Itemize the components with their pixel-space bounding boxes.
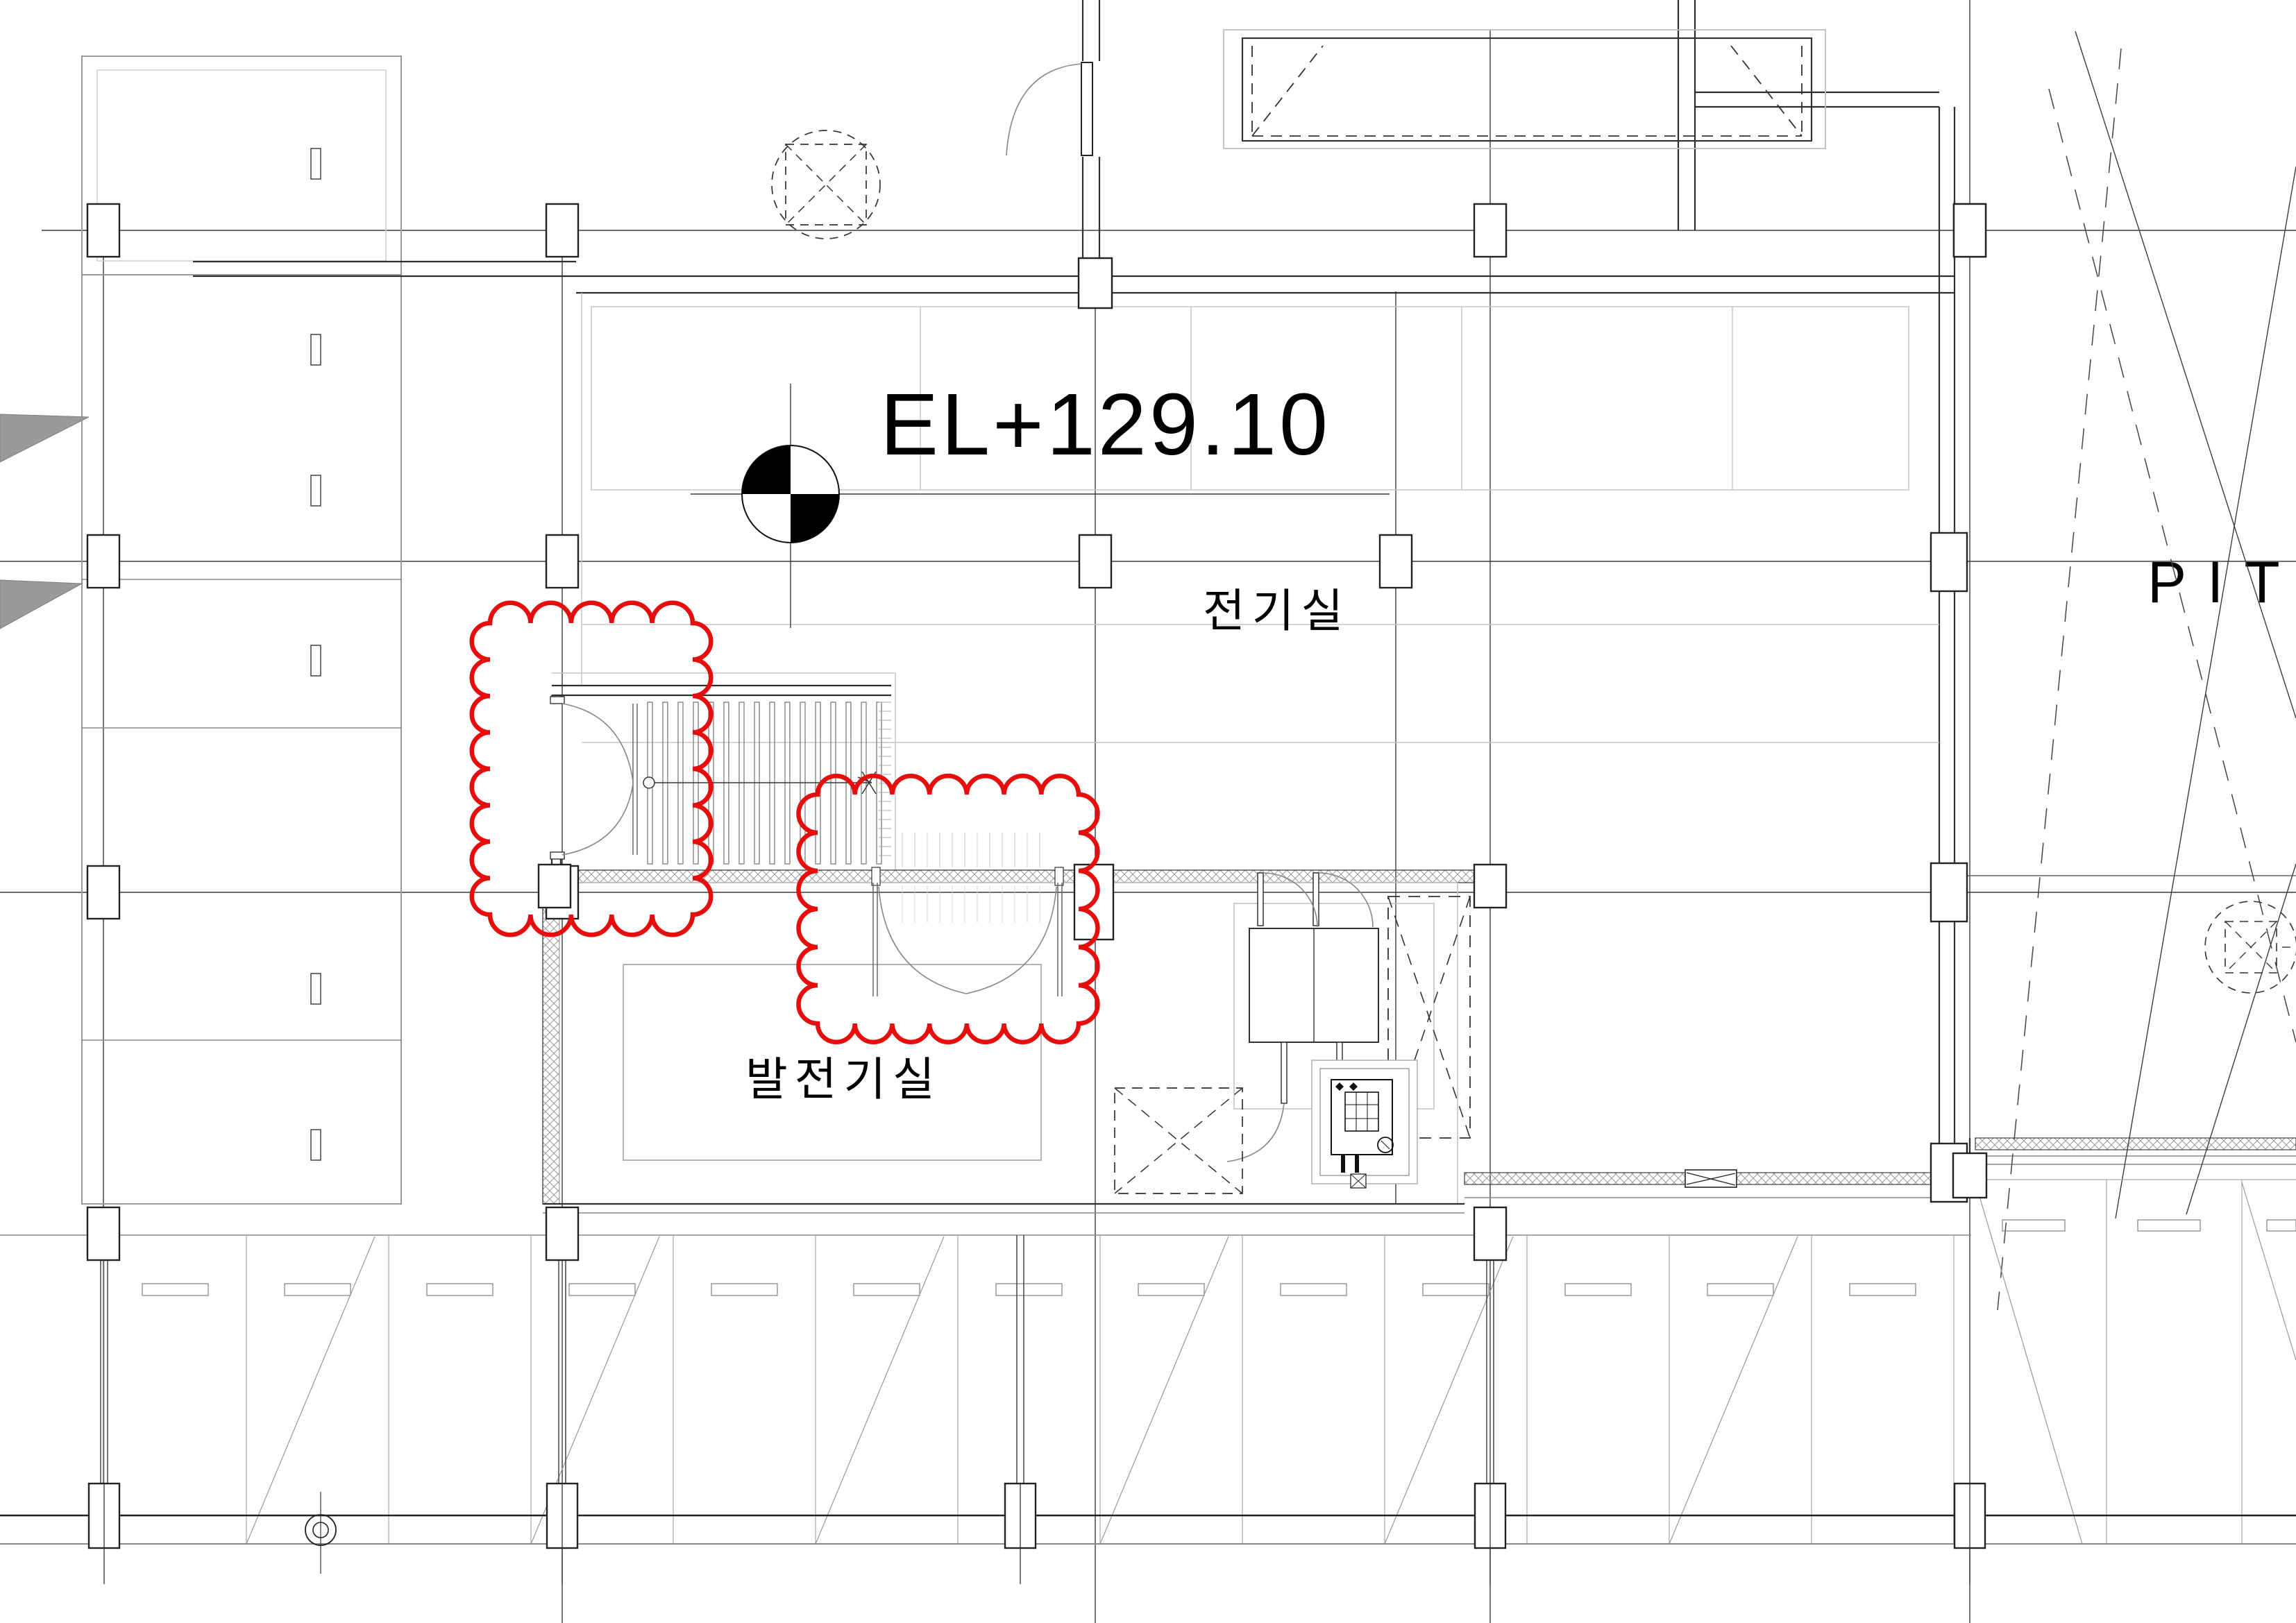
door-leaf bbox=[1081, 62, 1092, 155]
elevation-label: EL+129.10 bbox=[880, 375, 1331, 473]
hatched-wall-far-right bbox=[1975, 1138, 2296, 1150]
floor-plan-canvas: EL+129.10 전기실 발전기실 PIT bbox=[0, 0, 2296, 1623]
column bbox=[1079, 535, 1111, 588]
stair-direction-start bbox=[643, 777, 655, 788]
equipment-box bbox=[1312, 1060, 1417, 1188]
column bbox=[87, 204, 119, 257]
column bbox=[1474, 204, 1506, 257]
pit-label: PIT bbox=[2147, 550, 2296, 615]
floor-plan: EL+129.10 전기실 발전기실 PIT bbox=[0, 0, 2296, 1623]
door-leaf bbox=[1313, 873, 1319, 926]
wall-sleeve-marker bbox=[1685, 1170, 1737, 1187]
column bbox=[1954, 204, 1986, 257]
column bbox=[546, 1207, 578, 1260]
column bbox=[87, 866, 119, 919]
generator-room-label: 발전기실 bbox=[745, 1053, 942, 1105]
paper-background bbox=[0, 0, 2296, 1623]
column bbox=[1380, 535, 1412, 588]
electrical-room-label: 전기실 bbox=[1203, 585, 1350, 636]
door-leaf bbox=[1258, 873, 1263, 926]
column bbox=[87, 1207, 119, 1260]
column bbox=[87, 535, 119, 588]
column bbox=[546, 204, 578, 257]
column bbox=[1474, 1207, 1506, 1260]
door-leaf bbox=[1281, 1042, 1287, 1103]
column bbox=[546, 535, 578, 588]
hatched-wall-vertical bbox=[543, 883, 559, 1204]
